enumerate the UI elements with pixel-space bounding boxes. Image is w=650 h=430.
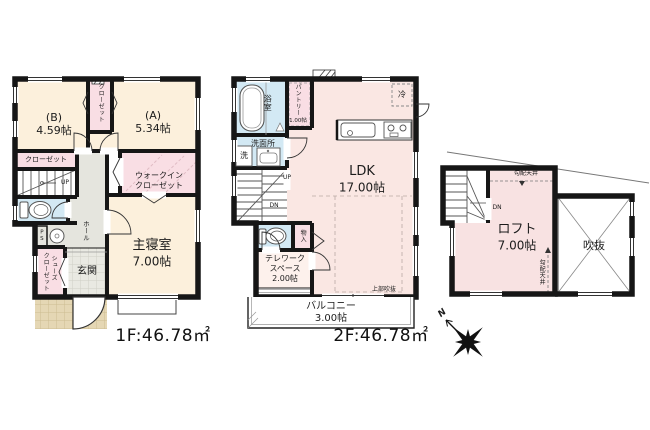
toilet-icon-2f — [259, 228, 286, 244]
shoes-closet-label-2: クローゼット — [42, 253, 48, 292]
telework-label-1: テレワーク — [265, 255, 305, 263]
washer-label: 洗 — [240, 152, 248, 160]
floorplan-page: (B) 4.59帖 (A) 5.34帖 クローゼット クローゼット UP ウォー… — [0, 0, 650, 430]
pantry-size-label: 1.00帖 — [289, 119, 307, 125]
ldk-size-label: 17.00帖 — [339, 182, 385, 195]
loft-size-label: 7.00帖 — [498, 240, 537, 253]
hall-label: ホール — [82, 221, 89, 242]
telework-label-2: スペース — [269, 265, 300, 273]
ldk-label: LDK — [349, 165, 375, 179]
fridge-label: 冷 — [398, 91, 406, 99]
shoes-closet-label-1: シューズ — [50, 255, 56, 281]
closet-label: クローゼット — [25, 156, 67, 163]
basin-icon-1f — [50, 229, 64, 243]
floorplan-canvas — [0, 0, 650, 430]
kitchen-counter — [337, 120, 412, 140]
north-arrow — [446, 320, 468, 342]
stove-icon — [384, 122, 411, 138]
ps-label: PS — [38, 230, 44, 243]
floor1-plan — [12, 76, 202, 330]
compass-rose — [446, 320, 483, 357]
stairs-dn-label-loft: DN — [492, 205, 501, 211]
stairs-dn-label-2f: DN — [269, 203, 278, 209]
loft-label: ロフト — [497, 223, 536, 237]
entrance-label: 玄関 — [77, 267, 97, 278]
sloped-ceiling-label-top: 勾配天井 — [514, 171, 538, 177]
storage-label: 物入 — [299, 230, 305, 243]
loft-plan — [443, 152, 649, 298]
master-bedroom-label: 主寝室 — [132, 239, 171, 253]
sink-icon — [341, 123, 375, 137]
loft-stair-opening — [485, 198, 492, 220]
master-bedroom-size: 7.00帖 — [133, 256, 172, 269]
closet-strip-label: クローゼット — [97, 84, 103, 123]
washroom-label: 洗面所 — [251, 140, 275, 148]
stairs-up-label-1f: UP — [61, 180, 69, 186]
vanity-icon — [257, 148, 280, 166]
room-b-name: (B) — [46, 112, 62, 124]
floor1-area-label: 1F:46.78㎡ — [115, 328, 210, 346]
room-a-size: 5.34帖 — [135, 123, 171, 135]
telework-label-3: 2.00帖 — [272, 275, 298, 283]
pantry-label: パントリー — [294, 84, 300, 117]
room-b-size: 4.59帖 — [36, 125, 72, 137]
stairs-up-label-2f: UP — [283, 175, 291, 181]
balcony-label: バルコニー — [306, 302, 356, 313]
floor2-area-label: 2F:46.78㎡ — [333, 328, 428, 346]
walkin-closet-label-2: クローゼット — [135, 182, 183, 190]
room-a-name: (A) — [145, 110, 161, 122]
sloped-ceiling-label-side: 勾配天井 — [538, 259, 544, 285]
void-label: 吹抜 — [583, 240, 605, 252]
floor2-plan — [231, 70, 430, 328]
bath-label: 浴室 — [263, 95, 271, 112]
walkin-closet-label-1: ウォークイン — [135, 172, 183, 180]
open-above-label: 上部吹抜 — [372, 287, 396, 293]
balcony-size-label: 3.00帖 — [315, 314, 347, 325]
toilet-icon-1f — [20, 202, 51, 219]
